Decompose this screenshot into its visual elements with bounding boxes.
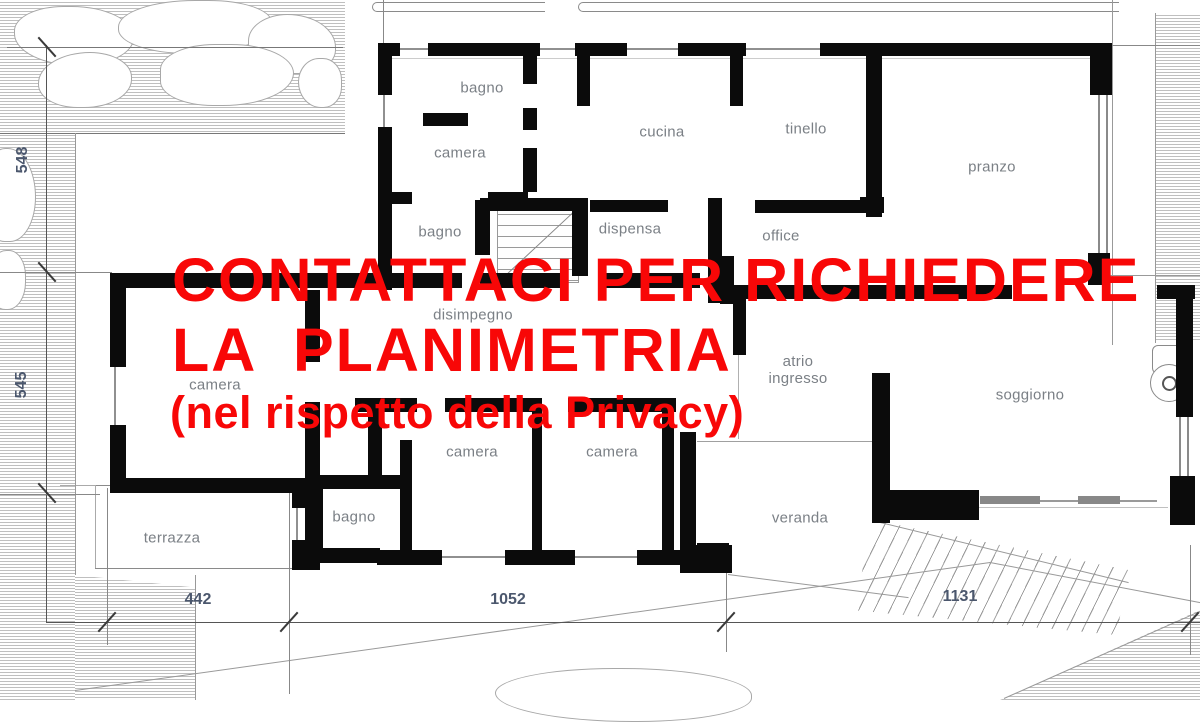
wall-segment <box>315 548 380 563</box>
wall-segment <box>110 478 302 493</box>
roof-outline <box>578 2 1119 12</box>
wall-segment <box>577 50 590 106</box>
room-label-bagno-top: bagno <box>460 80 503 97</box>
room-label-bagno-mid: bagno <box>418 224 461 241</box>
watermark-line-3: (nel rispetto della Privacy) <box>170 390 744 435</box>
outdoor-stairs <box>854 520 1129 660</box>
wall-segment <box>820 43 1106 56</box>
atrio-line: atrio <box>768 353 827 370</box>
plan-line <box>95 485 96 568</box>
plan-line <box>978 507 1168 508</box>
wall-segment <box>755 200 867 213</box>
wall-segment <box>378 192 412 204</box>
wall-segment <box>523 148 537 192</box>
plan-line <box>47 622 1200 623</box>
plan-line <box>383 0 384 43</box>
wall-segment <box>377 550 442 565</box>
wall-segment <box>480 198 574 211</box>
wall-segment <box>110 275 126 367</box>
room-label-camera-top: camera <box>434 145 486 162</box>
vegetation-blob <box>298 58 342 108</box>
plan-line <box>60 485 95 486</box>
plan-line <box>75 133 76 575</box>
dimension-label-545: 545 <box>13 372 31 399</box>
plan-line <box>1098 93 1100 255</box>
plan-line <box>289 485 290 694</box>
watermark-line-1: CONTATTACI PER RICHIEDERE <box>172 250 1140 311</box>
plan-line <box>980 496 1040 504</box>
dimension-label-1052: 1052 <box>490 591 526 609</box>
plan-line <box>697 441 872 442</box>
room-label-veranda: veranda <box>772 510 828 527</box>
plan-line <box>442 556 505 558</box>
wall-segment <box>523 108 537 130</box>
wall-segment <box>873 490 979 520</box>
plan-line <box>1106 45 1200 46</box>
room-label-office: office <box>762 228 799 245</box>
wall-segment <box>378 43 392 95</box>
plan-line <box>1190 545 1191 655</box>
watermark-line-2: LA PLANIMETRIA <box>172 320 732 381</box>
plan-line <box>114 365 116 425</box>
vegetation-blob <box>38 52 132 108</box>
room-label-pranzo: pranzo <box>968 159 1016 176</box>
wall-segment <box>730 50 743 106</box>
room-label-camera-mid: camera <box>446 444 498 461</box>
wall-segment <box>523 50 537 84</box>
wall-segment <box>292 540 320 570</box>
wall-segment <box>866 55 882 217</box>
wall-segment <box>637 550 699 565</box>
room-label-bagno-bottom: bagno <box>332 509 375 526</box>
room-label-terrazza: terrazza <box>144 530 201 547</box>
wall-segment <box>860 197 884 213</box>
wall-segment <box>305 475 407 489</box>
plan-line <box>296 507 298 540</box>
plan-line <box>383 95 385 127</box>
wall-segment <box>400 440 412 552</box>
plan-line <box>46 45 47 623</box>
plan-line <box>1155 13 1156 343</box>
room-label-soggiorno: soggiorno <box>996 387 1065 404</box>
fireplace-icon <box>1162 376 1177 391</box>
dimension-label-1131: 1131 <box>943 588 978 606</box>
wall-segment <box>1157 285 1195 299</box>
plan-line <box>575 556 637 558</box>
terrain-line <box>75 562 990 691</box>
wall-segment <box>1090 43 1112 95</box>
plan-line <box>0 133 345 134</box>
wall-segment <box>505 550 575 565</box>
plan-line <box>95 568 295 569</box>
plan-line <box>7 47 343 48</box>
wall-segment <box>423 113 468 126</box>
wall-segment <box>590 200 668 212</box>
dimension-label-442: 442 <box>185 591 212 609</box>
vegetation-blob <box>495 668 752 722</box>
plan-line <box>0 272 112 273</box>
wall-segment <box>1176 299 1193 417</box>
wall-segment <box>680 432 696 550</box>
wall-segment <box>1170 476 1195 525</box>
room-label-atrio-ingresso: atrio ingresso <box>768 353 827 387</box>
wall-segment <box>697 543 729 570</box>
room-label-camera-right: camera <box>586 444 638 461</box>
room-label-cucina: cucina <box>639 124 684 141</box>
dimension-label-548: 548 <box>14 147 32 174</box>
room-label-dispensa: dispensa <box>599 221 661 238</box>
plan-line <box>1187 417 1189 476</box>
plan-line <box>1078 496 1120 504</box>
ingresso-line: ingresso <box>768 370 827 387</box>
plan-line <box>1106 93 1108 255</box>
room-label-tinello: tinello <box>785 121 826 138</box>
floor-plan: bagno camera bagno cucina tinello pranzo… <box>0 0 1200 700</box>
plan-line <box>1179 417 1181 476</box>
wall-segment <box>110 425 126 493</box>
roof-outline <box>372 2 545 12</box>
